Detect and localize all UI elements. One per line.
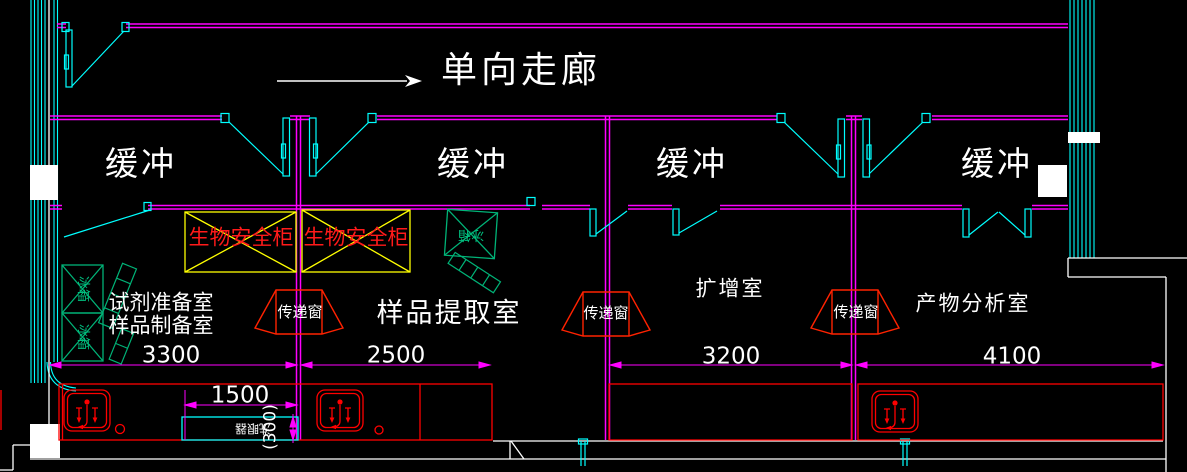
sink-icon	[64, 390, 110, 431]
room-label-analysis: 产物分析室	[916, 292, 1031, 315]
fridge-label: 冰箱	[75, 324, 89, 350]
buffer-room-label: 缓冲	[656, 146, 728, 182]
eyewash-label: 洗眼器	[235, 421, 271, 434]
cad-canvas: 单向走廊 缓冲 缓冲 缓冲 缓冲 生物安全柜 生物安全柜 传递窗 传递窗 传递窗…	[0, 0, 1187, 472]
dim-amplification-width: 3200	[702, 344, 761, 369]
dim-prep-width: 3300	[142, 343, 201, 368]
pass-window-label: 传递窗	[277, 304, 322, 321]
sink-icon	[317, 390, 363, 431]
dim-analysis-width: 4100	[983, 344, 1042, 369]
room-label-extraction: 样品提取室	[377, 299, 522, 329]
buffer-bottom-wall	[50, 206, 1068, 210]
room-label-amplification: 扩增室	[696, 277, 765, 300]
buffer-room-label: 缓冲	[105, 146, 177, 182]
buffer-room-label: 缓冲	[961, 146, 1033, 182]
direction-arrow-icon	[277, 75, 422, 87]
corridor-direction-label: 单向走廊	[441, 51, 601, 91]
corridor-top-wall	[57, 24, 1068, 28]
right-exterior-wall-hatch	[1070, 0, 1094, 258]
corridor-bottom-wall	[50, 116, 1068, 120]
pass-window-label: 传递窗	[583, 305, 628, 322]
biosafety-cabinet-label: 生物安全柜	[304, 226, 409, 249]
fridge-label: 冰箱	[75, 276, 89, 302]
room-partition-walls	[297, 116, 856, 440]
buffer-room-label: 缓冲	[437, 146, 509, 182]
dim-extraction-width: 2500	[367, 343, 426, 368]
fridge-label: 冰箱	[458, 227, 484, 241]
biosafety-cabinet-label: 生物安全柜	[189, 226, 294, 249]
sink-icon	[872, 391, 918, 432]
room-label-prep-line1: 试剂准备室	[109, 291, 214, 314]
pass-window-label: 传递窗	[833, 304, 878, 321]
room-label-prep-line2: 样品制备室	[109, 314, 214, 337]
bench-outlines	[1, 384, 1163, 440]
